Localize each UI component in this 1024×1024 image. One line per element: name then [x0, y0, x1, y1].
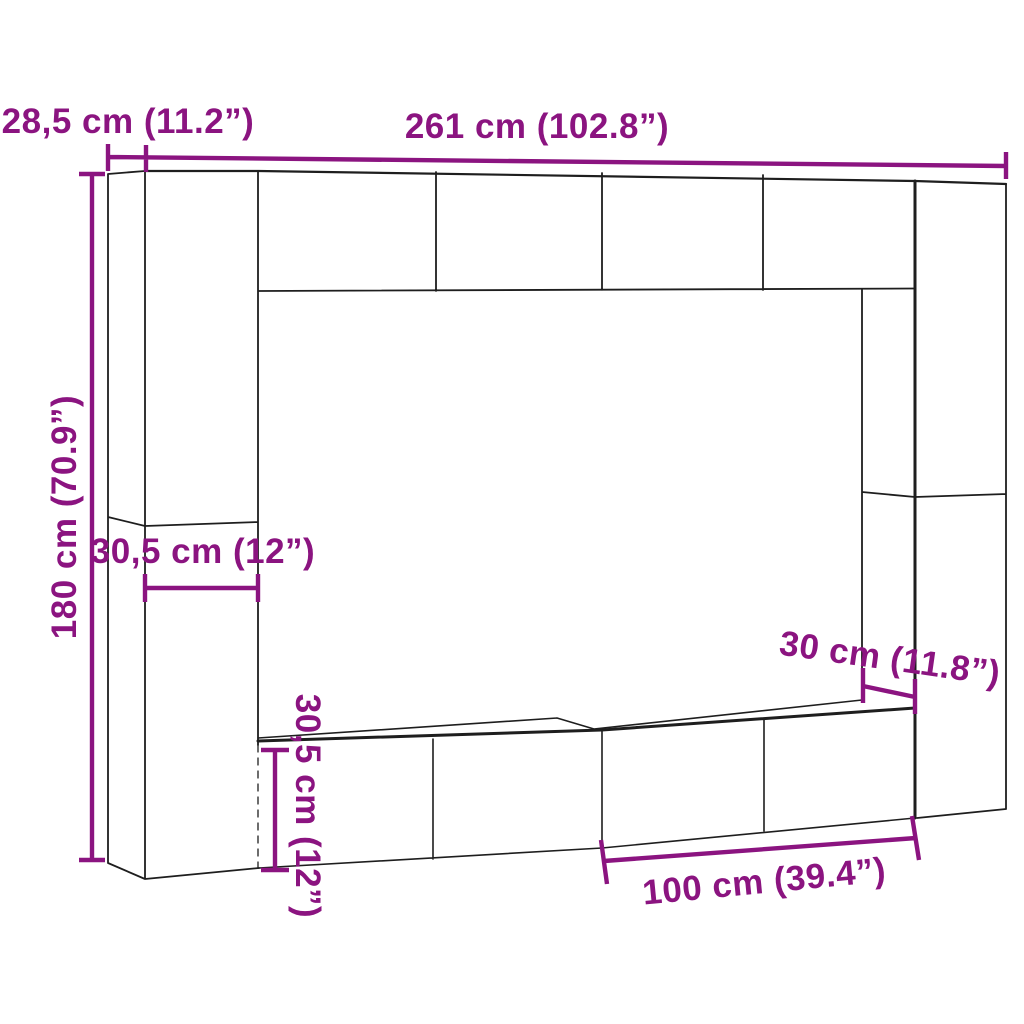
dimension-lines	[79, 144, 1006, 884]
top-row-outline	[259, 172, 915, 291]
right-column-outline	[862, 184, 1006, 818]
label-total-width: 261 cm (102.8”)	[405, 107, 669, 146]
cabinet-structure	[108, 171, 1006, 879]
dimension-labels: 28,5 cm (11.2”) 261 cm (102.8”) 180 cm (…	[2, 102, 1003, 918]
dimension-line-side-cabinet-width	[145, 574, 258, 602]
label-side-cabinet-width: 30,5 cm (12”)	[91, 532, 315, 571]
dimension-line-bottom-cabinet-height	[261, 750, 289, 870]
label-depth: 28,5 cm (11.2”)	[2, 102, 255, 141]
label-right-cabinet-width: 30 cm (11.8”)	[777, 624, 1003, 694]
left-column-outline	[108, 171, 259, 879]
label-total-height: 180 cm (70.9”)	[45, 395, 84, 639]
dimension-line-total-width	[108, 144, 1006, 179]
unit-top-edge	[145, 171, 1006, 184]
label-bottom-cabinet-height: 30,5 cm (12”)	[288, 694, 327, 918]
furniture-dimension-diagram: 28,5 cm (11.2”) 261 cm (102.8”) 180 cm (…	[0, 0, 1024, 1024]
bottom-row-outline	[258, 700, 915, 868]
label-bottom-cabinet-width: 100 cm (39.4”)	[641, 850, 888, 912]
bottom-row-top-front-edge	[258, 708, 915, 741]
diagram-canvas: 28,5 cm (11.2”) 261 cm (102.8”) 180 cm (…	[0, 0, 1024, 1024]
